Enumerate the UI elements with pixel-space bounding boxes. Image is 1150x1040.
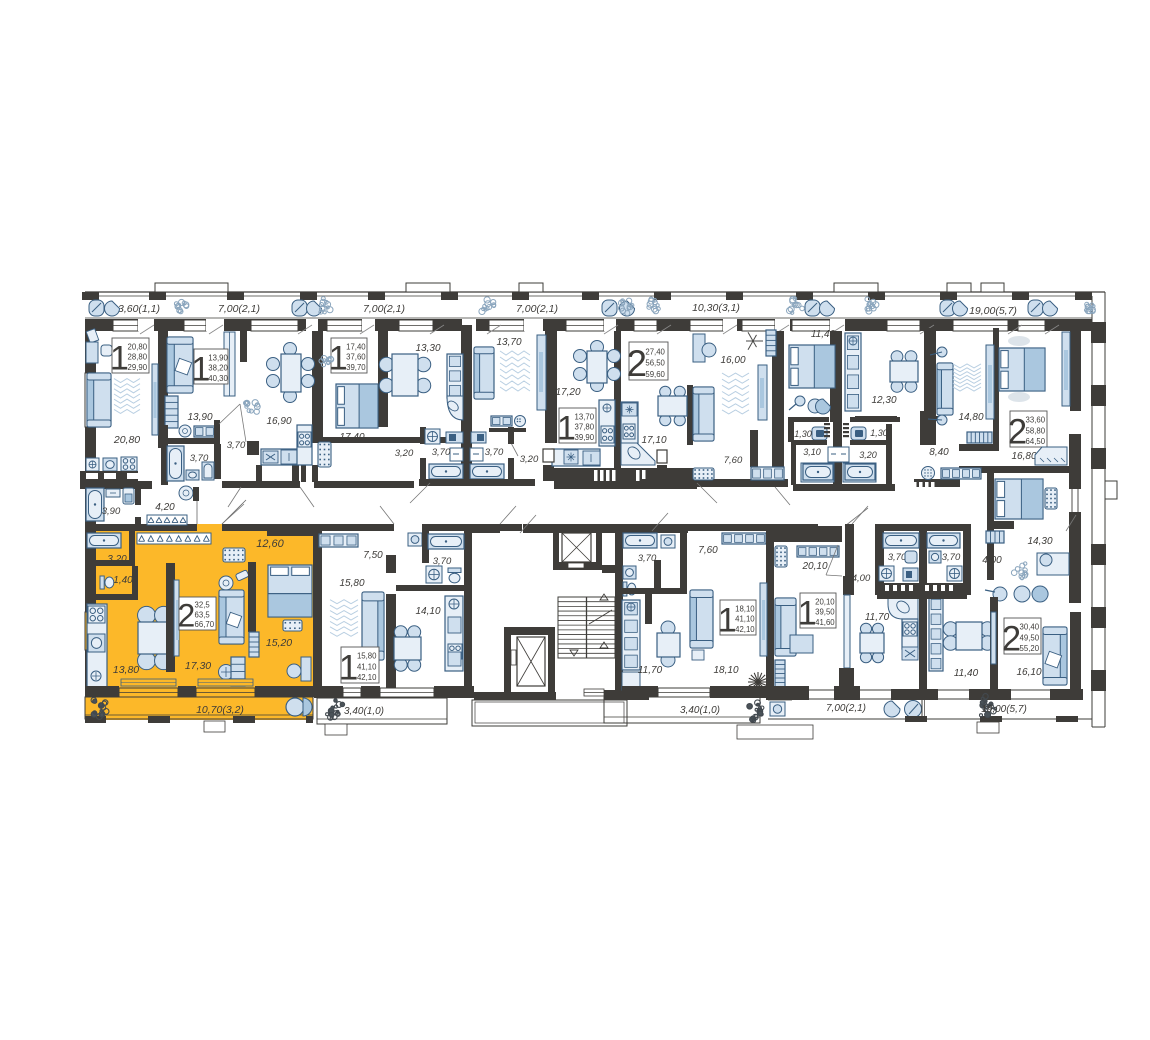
svg-text:11,70: 11,70: [865, 612, 890, 623]
svg-text:3,70: 3,70: [432, 447, 451, 458]
svg-text:17,40: 17,40: [346, 342, 366, 351]
svg-text:42,10: 42,10: [357, 673, 377, 682]
svg-text:1,30: 1,30: [870, 428, 888, 438]
svg-text:7,50: 7,50: [363, 550, 383, 561]
svg-text:1: 1: [798, 595, 817, 633]
svg-text:41,60: 41,60: [815, 618, 835, 627]
svg-text:49,50: 49,50: [1020, 633, 1040, 642]
svg-text:32,5: 32,5: [195, 601, 211, 610]
svg-text:33,60: 33,60: [1026, 416, 1046, 425]
svg-text:20,80: 20,80: [128, 342, 148, 351]
svg-text:13,80: 13,80: [113, 664, 139, 676]
svg-text:13,30: 13,30: [415, 343, 440, 354]
svg-text:2: 2: [178, 598, 196, 634]
svg-text:3,70: 3,70: [227, 440, 246, 451]
svg-text:11,40: 11,40: [811, 329, 836, 340]
svg-text:7,60: 7,60: [698, 545, 718, 556]
svg-text:16,90: 16,90: [266, 416, 291, 427]
svg-text:3,20: 3,20: [395, 448, 414, 459]
svg-text:13,70: 13,70: [496, 337, 521, 348]
svg-text:16,00: 16,00: [720, 355, 745, 366]
svg-text:1: 1: [557, 410, 576, 448]
svg-text:19,00(5,7): 19,00(5,7): [969, 305, 1017, 317]
svg-text:14,10: 14,10: [415, 606, 440, 617]
svg-text:2: 2: [1002, 619, 1021, 658]
svg-text:7,00(2,1): 7,00(2,1): [826, 703, 866, 714]
svg-text:27,40: 27,40: [645, 347, 665, 356]
svg-text:2: 2: [1008, 412, 1027, 451]
svg-text:38,20: 38,20: [208, 364, 228, 373]
svg-text:4,20: 4,20: [155, 502, 175, 513]
svg-text:15,20: 15,20: [266, 637, 292, 649]
svg-text:30,40: 30,40: [1020, 623, 1040, 632]
svg-text:29,90: 29,90: [128, 363, 148, 372]
svg-text:1: 1: [718, 602, 737, 640]
svg-text:3,10: 3,10: [803, 447, 821, 457]
svg-text:58,80: 58,80: [1026, 426, 1046, 435]
svg-text:8,40: 8,40: [929, 447, 949, 458]
svg-text:11,40: 11,40: [954, 668, 979, 679]
svg-text:17,40: 17,40: [339, 432, 364, 443]
svg-text:14,80: 14,80: [958, 412, 983, 423]
svg-text:63,5: 63,5: [195, 610, 211, 619]
svg-text:39,50: 39,50: [815, 608, 835, 617]
svg-text:12,60: 12,60: [256, 538, 284, 550]
svg-text:4,00: 4,00: [982, 555, 1002, 566]
svg-text:19,00(5,7): 19,00(5,7): [981, 704, 1027, 715]
svg-text:3,70: 3,70: [942, 552, 961, 563]
svg-text:28,80: 28,80: [128, 353, 148, 362]
svg-text:4,00: 4,00: [852, 573, 871, 584]
svg-text:41,10: 41,10: [735, 615, 755, 624]
svg-text:1: 1: [110, 340, 129, 378]
svg-text:56,50: 56,50: [645, 359, 665, 368]
svg-text:55,20: 55,20: [1020, 644, 1040, 653]
svg-text:2: 2: [627, 343, 648, 384]
svg-text:13,90: 13,90: [208, 353, 228, 362]
svg-text:16,80: 16,80: [1011, 451, 1036, 462]
svg-text:64,50: 64,50: [1026, 437, 1046, 446]
svg-text:3,60(1,1): 3,60(1,1): [118, 303, 160, 315]
svg-text:3,70: 3,70: [888, 552, 907, 563]
svg-text:17,20: 17,20: [555, 387, 580, 398]
svg-text:11,70: 11,70: [638, 665, 663, 676]
svg-text:42,10: 42,10: [735, 625, 755, 634]
svg-text:3,90: 3,90: [102, 506, 121, 517]
svg-text:20,10: 20,10: [815, 597, 835, 606]
svg-text:17,30: 17,30: [185, 660, 211, 672]
svg-text:14,30: 14,30: [1027, 536, 1052, 547]
svg-text:3,20: 3,20: [520, 454, 539, 465]
svg-text:1,30: 1,30: [794, 429, 812, 439]
svg-text:12,30: 12,30: [871, 395, 896, 406]
svg-text:18,10: 18,10: [713, 665, 738, 676]
svg-text:16,10: 16,10: [1016, 667, 1041, 678]
svg-text:3,70: 3,70: [190, 453, 209, 464]
svg-text:7,60: 7,60: [724, 455, 743, 466]
svg-text:7,00(2,1): 7,00(2,1): [218, 303, 260, 315]
svg-text:41,10: 41,10: [357, 662, 377, 671]
svg-text:15,80: 15,80: [357, 652, 377, 661]
svg-text:10,30(3,1): 10,30(3,1): [692, 302, 740, 314]
svg-text:20,80: 20,80: [113, 434, 140, 446]
svg-text:3,70: 3,70: [485, 447, 504, 458]
svg-text:20,10: 20,10: [801, 561, 827, 572]
svg-text:40,30: 40,30: [208, 374, 228, 383]
svg-text:18,10: 18,10: [735, 604, 755, 613]
svg-text:3,20: 3,20: [859, 450, 877, 460]
svg-text:39,70: 39,70: [346, 363, 366, 372]
svg-text:13,70: 13,70: [575, 412, 595, 421]
svg-text:3,40(1,0): 3,40(1,0): [680, 705, 720, 716]
svg-text:3,20: 3,20: [107, 554, 127, 565]
svg-text:3,40(1,0): 3,40(1,0): [344, 706, 384, 717]
svg-text:10,70(3,2): 10,70(3,2): [196, 704, 244, 716]
svg-text:1: 1: [339, 648, 358, 687]
svg-text:37,60: 37,60: [346, 353, 366, 362]
svg-text:7,00(2,1): 7,00(2,1): [516, 303, 558, 315]
svg-text:1,40: 1,40: [113, 575, 133, 586]
svg-text:17,10: 17,10: [641, 435, 666, 446]
svg-text:15,80: 15,80: [339, 578, 364, 589]
svg-text:3,70: 3,70: [433, 556, 452, 567]
svg-text:37,80: 37,80: [575, 423, 595, 432]
svg-text:66,70: 66,70: [195, 620, 215, 629]
svg-text:13,90: 13,90: [187, 412, 212, 423]
svg-text:7,00(2,1): 7,00(2,1): [363, 303, 405, 315]
svg-text:59,60: 59,60: [645, 370, 665, 379]
svg-text:39,90: 39,90: [575, 433, 595, 442]
